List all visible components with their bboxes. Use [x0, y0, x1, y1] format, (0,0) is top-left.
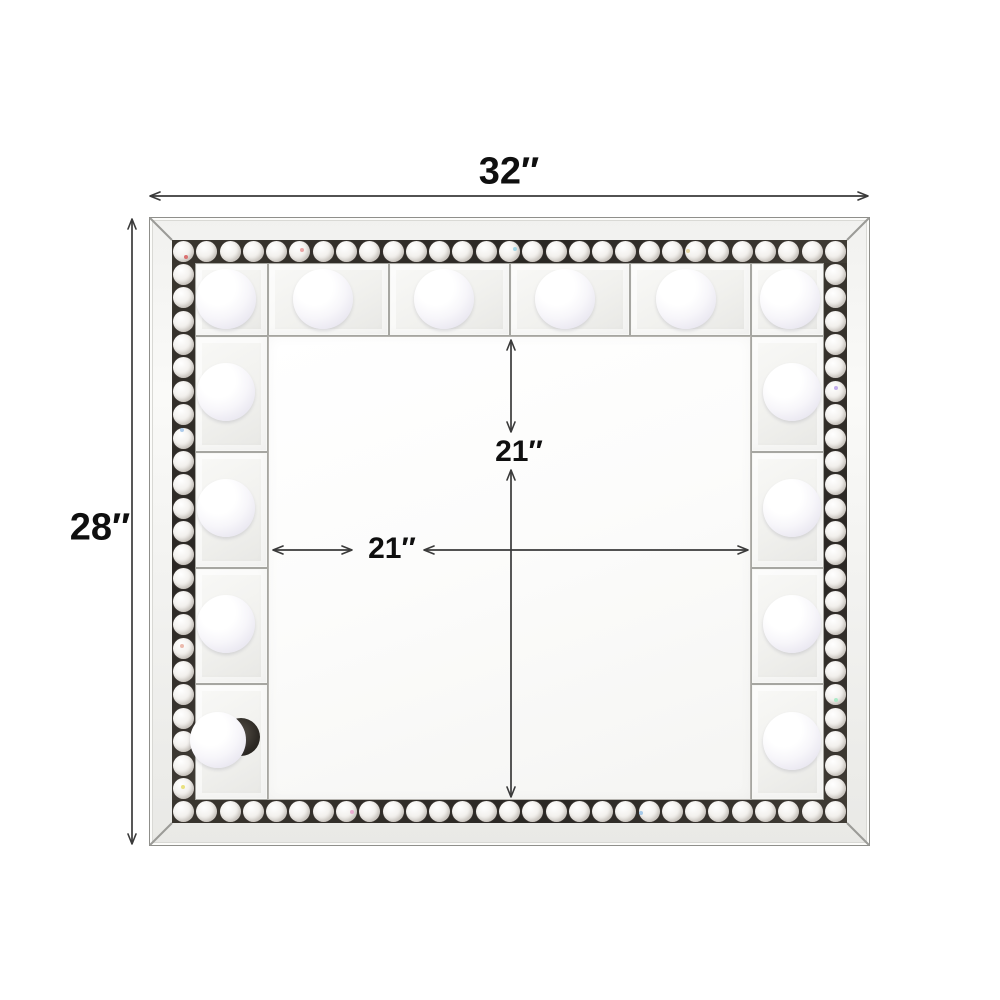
light-bulb — [535, 269, 595, 329]
crystal-sparkle — [686, 249, 690, 253]
crystal-dot — [313, 801, 334, 822]
crystal-dot — [173, 591, 194, 612]
crystal-dot — [173, 334, 194, 355]
crystal-dot — [336, 241, 357, 262]
light-bulb — [656, 269, 716, 329]
crystal-dot — [522, 801, 543, 822]
mirror-dimension-diagram: 32″ 28″ 21″ 21″ — [0, 0, 1000, 1000]
crystal-dot — [313, 241, 334, 262]
crystal-dot — [825, 287, 846, 308]
crystal-dot — [825, 241, 846, 262]
crystal-sparkle — [180, 428, 184, 432]
crystal-dot — [546, 241, 567, 262]
crystal-dot — [406, 241, 427, 262]
crystal-dot — [569, 241, 590, 262]
light-bulb — [763, 712, 821, 770]
crystal-dot — [499, 241, 520, 262]
crystal-dot — [592, 801, 613, 822]
crystal-dot — [289, 801, 310, 822]
crystal-dot — [825, 731, 846, 752]
crystal-dot — [266, 801, 287, 822]
crystal-dot — [732, 801, 753, 822]
crystal-dot — [592, 241, 613, 262]
crystal-sparkle — [350, 810, 354, 814]
crystal-dot — [802, 241, 823, 262]
crystal-dot — [802, 801, 823, 822]
crystal-dot — [499, 801, 520, 822]
crystal-dot — [825, 544, 846, 565]
mirror-glass — [268, 336, 751, 800]
crystal-dot — [173, 521, 194, 542]
crystal-sparkle — [181, 785, 185, 789]
crystal-dot — [732, 241, 753, 262]
crystal-dot — [220, 801, 241, 822]
crystal-dot — [266, 241, 287, 262]
crystal-dot — [429, 801, 450, 822]
crystal-dot — [639, 241, 660, 262]
light-bulb — [190, 712, 246, 768]
light-bulb — [293, 269, 353, 329]
crystal-sparkle — [180, 644, 184, 648]
crystal-dot — [173, 755, 194, 776]
crystal-dot — [173, 684, 194, 705]
crystal-dot — [406, 801, 427, 822]
crystal-dot — [173, 311, 194, 332]
light-bulb — [196, 269, 256, 329]
crystal-dot — [452, 241, 473, 262]
crystal-dot — [825, 778, 846, 799]
crystal-dot — [825, 311, 846, 332]
crystal-dot — [778, 801, 799, 822]
crystal-dot — [708, 241, 729, 262]
light-bulb — [414, 269, 474, 329]
crystal-dot — [825, 428, 846, 449]
crystal-dot — [173, 568, 194, 589]
crystal-dot — [173, 357, 194, 378]
crystal-dot — [220, 241, 241, 262]
crystal-band-bottom — [172, 800, 847, 823]
crystal-dot — [173, 661, 194, 682]
crystal-dot — [825, 591, 846, 612]
crystal-dot — [359, 801, 380, 822]
light-bulb — [763, 479, 821, 537]
crystal-dot — [196, 801, 217, 822]
dim-label-inner-width: 21″ — [368, 532, 416, 566]
crystal-dot — [825, 498, 846, 519]
crystal-dot — [825, 264, 846, 285]
crystal-dot — [662, 241, 683, 262]
crystal-dot — [825, 755, 846, 776]
crystal-sparkle — [184, 255, 188, 259]
crystal-dot — [173, 264, 194, 285]
crystal-dot — [685, 801, 706, 822]
crystal-dot — [755, 241, 776, 262]
crystal-dot — [429, 241, 450, 262]
dim-label-overall-width: 32″ — [479, 151, 539, 194]
crystal-dot — [173, 381, 194, 402]
crystal-dot — [825, 708, 846, 729]
crystal-dot — [173, 241, 194, 262]
crystal-dot — [243, 241, 264, 262]
crystal-dot — [825, 638, 846, 659]
crystal-dot — [173, 287, 194, 308]
crystal-dot — [383, 801, 404, 822]
crystal-sparkle — [513, 247, 517, 251]
crystal-band-right — [824, 263, 847, 800]
crystal-dot — [708, 801, 729, 822]
crystal-dot — [173, 614, 194, 635]
crystal-dot — [173, 708, 194, 729]
dim-label-overall-height: 28″ — [70, 507, 130, 550]
crystal-dot — [243, 801, 264, 822]
crystal-dot — [476, 801, 497, 822]
crystal-dot — [825, 451, 846, 472]
crystal-dot — [173, 544, 194, 565]
crystal-dot — [825, 404, 846, 425]
crystal-sparkle — [834, 698, 838, 702]
light-bulb — [197, 595, 255, 653]
crystal-band-left — [172, 263, 195, 800]
crystal-dot — [173, 638, 194, 659]
crystal-dot — [615, 241, 636, 262]
light-bulb — [763, 595, 821, 653]
crystal-band-top — [172, 240, 847, 263]
crystal-sparkle — [834, 386, 838, 390]
crystal-dot — [196, 241, 217, 262]
crystal-dot — [383, 241, 404, 262]
light-bulb — [763, 363, 821, 421]
crystal-dot — [825, 474, 846, 495]
crystal-dot — [173, 801, 194, 822]
crystal-dot — [825, 334, 846, 355]
crystal-dot — [569, 801, 590, 822]
crystal-dot — [546, 801, 567, 822]
crystal-dot — [173, 451, 194, 472]
crystal-dot — [825, 381, 846, 402]
crystal-sparkle — [300, 248, 304, 252]
crystal-dot — [825, 684, 846, 705]
crystal-dot — [825, 614, 846, 635]
crystal-dot — [615, 801, 636, 822]
crystal-sparkle — [639, 811, 643, 815]
crystal-dot — [825, 661, 846, 682]
light-bulb — [197, 363, 255, 421]
crystal-dot — [476, 241, 497, 262]
crystal-dot — [778, 241, 799, 262]
crystal-dot — [825, 568, 846, 589]
crystal-dot — [359, 241, 380, 262]
light-bulb — [760, 269, 820, 329]
dim-label-inner-height: 21″ — [495, 435, 543, 469]
crystal-dot — [173, 404, 194, 425]
crystal-dot — [825, 801, 846, 822]
light-bulb — [197, 479, 255, 537]
crystal-dot — [452, 801, 473, 822]
crystal-dot — [522, 241, 543, 262]
crystal-dot — [825, 521, 846, 542]
crystal-dot — [173, 498, 194, 519]
crystal-dot — [755, 801, 776, 822]
crystal-dot — [173, 474, 194, 495]
crystal-dot — [825, 357, 846, 378]
crystal-dot — [662, 801, 683, 822]
